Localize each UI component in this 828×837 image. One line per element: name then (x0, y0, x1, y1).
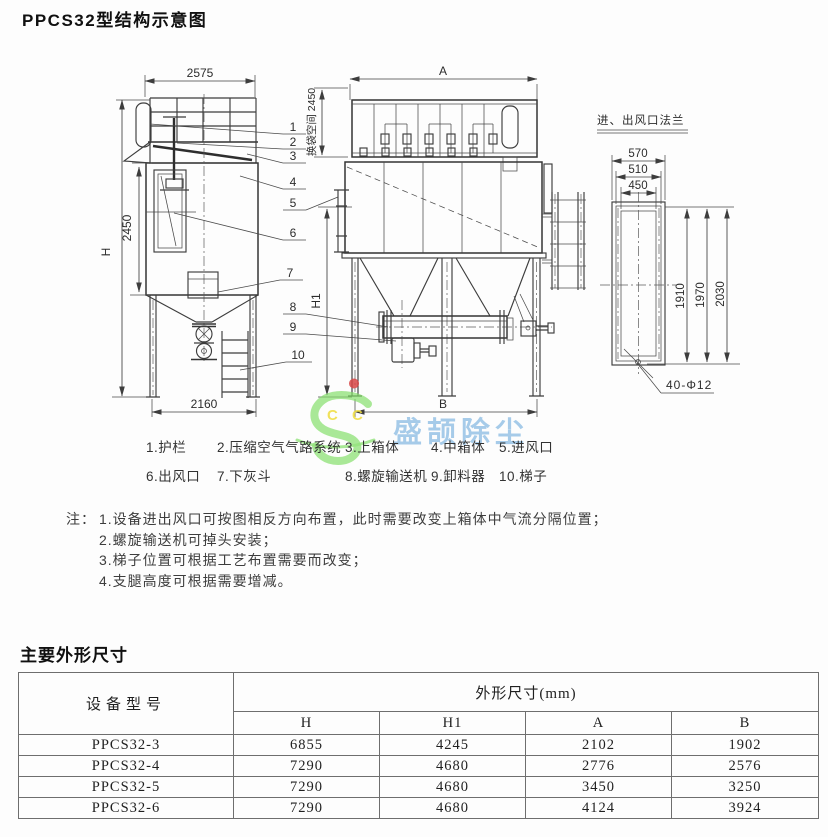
dim-label-450: 450 (628, 180, 647, 192)
notes-block: 注： 1.设备进出风口可按图相反方向布置，此时需要改变上箱体中气流分隔位置； 2… (66, 509, 608, 591)
value-cell: 2102 (526, 735, 672, 756)
dim-label-2030: 2030 (715, 281, 727, 307)
table-row: PPCS32-6 7290 4680 4124 3924 (19, 798, 819, 819)
table-header-H1: H1 (380, 712, 526, 735)
flange-detail-title: 进、出风口法兰 (597, 113, 685, 127)
table-header-B: B (672, 712, 819, 735)
legend-item: 6.出风口 (146, 465, 217, 485)
legend-item: 7.下灰斗 (217, 465, 345, 485)
part-number-8: 8 (290, 300, 297, 314)
legend-item: 9.卸料器 (431, 465, 499, 485)
dim-label-570: 570 (628, 148, 647, 160)
catalog-page: PPCS32型结构示意图 2575 (0, 0, 828, 837)
table-row: PPCS32-4 7290 4680 2776 2576 (19, 756, 819, 777)
model-cell: PPCS32-4 (19, 756, 234, 777)
legend-item: 8.螺旋输送机 (345, 465, 431, 485)
front-view: A (334, 64, 586, 417)
dim-label-1970: 1970 (695, 282, 707, 308)
part-number-5: 5 (290, 196, 297, 210)
part-number-2: 2 (290, 135, 297, 149)
value-cell: 4680 (380, 756, 526, 777)
dim-label-1910: 1910 (675, 283, 687, 309)
dimensions-table: 设备型号 外形尺寸(mm) H H1 A B PPCS32-3 6855 424… (18, 672, 819, 819)
table-header-group: 外形尺寸(mm) (234, 673, 819, 712)
legend-item: 1.护栏 (146, 436, 217, 456)
table-header-model: 设备型号 (19, 673, 234, 735)
legend-item: 4.中箱体 (431, 436, 499, 456)
parts-legend: 1.护栏 2.压缩空气气路系统 3.上箱体 4.中箱体 5.进风口 6.出风口 … (146, 436, 553, 485)
section-title: 主要外形尺寸 (20, 641, 128, 666)
watermark-letter: C (327, 407, 338, 424)
notes-prefix: 注： (66, 509, 96, 591)
watermark-letter: C (352, 407, 363, 424)
technical-drawing: 2575 (0, 0, 828, 490)
table-row: PPCS32-5 7290 4680 3450 3250 (19, 777, 819, 798)
part-number-10: 10 (291, 348, 305, 362)
value-cell: 7290 (234, 798, 380, 819)
model-cell: PPCS32-3 (19, 735, 234, 756)
dim-label-510: 510 (628, 164, 647, 176)
part-number-9: 9 (290, 320, 297, 334)
value-cell: 2776 (526, 756, 672, 777)
dim-label-2450: 2450 (120, 214, 134, 241)
table-header-H: H (234, 712, 380, 735)
part-number-6: 6 (290, 226, 297, 240)
note-line: 1.设备进出风口可按图相反方向布置，此时需要改变上箱体中气流分隔位置； (99, 509, 608, 530)
watermark-dot (349, 379, 359, 389)
bolt-holes-label: 40-Φ12 (666, 378, 712, 392)
legend-item: 5.进风口 (499, 436, 553, 456)
part-number-4: 4 (290, 175, 297, 189)
value-cell: 6855 (234, 735, 380, 756)
note-line: 3.梯子位置可根据工艺布置需要而改变； (99, 550, 608, 571)
legend-item: 2.压缩空气气路系统 (217, 436, 345, 456)
value-cell: 4124 (526, 798, 672, 819)
dim-label-H: H (99, 248, 113, 257)
value-cell: 4680 (380, 777, 526, 798)
dim-label-B: B (439, 397, 447, 411)
flange-detail: 进、出风口法兰 570 510 450 1910 1970 2 (597, 113, 740, 393)
note-line: 4.支腿高度可根据需要增减。 (99, 571, 608, 592)
value-cell: 4680 (380, 798, 526, 819)
value-cell: 3450 (526, 777, 672, 798)
model-cell: PPCS32-6 (19, 798, 234, 819)
dim-label-2575: 2575 (187, 66, 214, 80)
model-cell: PPCS32-5 (19, 777, 234, 798)
dim-label-A: A (439, 64, 447, 78)
side-view: 2575 (99, 66, 352, 417)
value-cell: 2576 (672, 756, 819, 777)
value-cell: 7290 (234, 756, 380, 777)
dim-label-H1: H1 (309, 293, 323, 309)
part-number-3: 3 (290, 149, 297, 163)
legend-item: 3.上箱体 (345, 436, 431, 456)
table-header-A: A (526, 712, 672, 735)
legend-item: 10.梯子 (499, 465, 553, 485)
value-cell: 1902 (672, 735, 819, 756)
dim-label-bag-space: 换袋空间 2450 (305, 88, 318, 156)
part-number-1: 1 (290, 120, 297, 134)
part-number-7: 7 (287, 266, 294, 280)
dim-label-2160: 2160 (191, 397, 218, 411)
value-cell: 3250 (672, 777, 819, 798)
note-line: 2.螺旋输送机可掉头安装； (99, 530, 608, 551)
table-row: PPCS32-3 6855 4245 2102 1902 (19, 735, 819, 756)
value-cell: 4245 (380, 735, 526, 756)
value-cell: 3924 (672, 798, 819, 819)
value-cell: 7290 (234, 777, 380, 798)
